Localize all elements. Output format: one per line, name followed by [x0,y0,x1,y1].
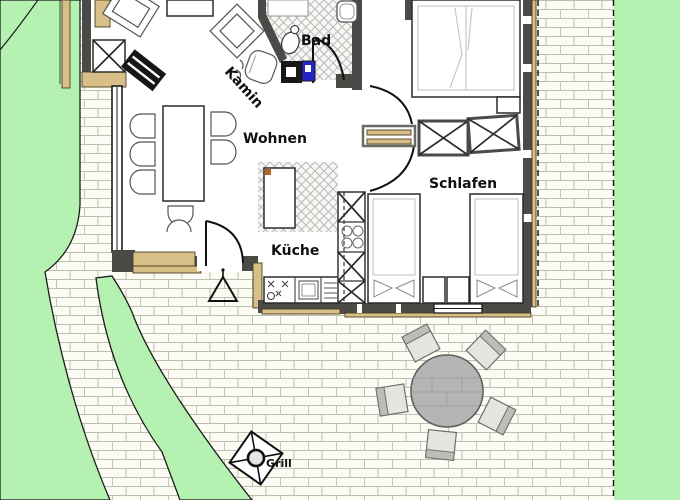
double-bed [412,0,520,113]
single-bed-1 [368,194,420,303]
dining-table [163,106,204,201]
wardrobe-2 [468,115,519,152]
terrace-window [133,252,195,266]
fence-strip [62,0,70,88]
nightstand [447,277,469,303]
bathroom-label: Bad [301,33,331,49]
kitchen-label: Küche [271,243,319,259]
terrace-door-opening [197,255,242,271]
corner-lintel [82,72,126,87]
patio-chair [426,430,457,461]
bedroom-label: Schlafen [429,176,497,192]
kitchen-island [264,168,295,228]
patio-table [411,355,483,427]
living-room-label: Wohnen [243,131,307,147]
wall-edging [532,0,536,307]
terrace-sill [133,266,201,273]
shower-tray [268,0,308,16]
grill-label: Grill [266,457,292,470]
sofa-table [167,0,213,16]
patio-chair [376,384,408,416]
floor-plan-canvas: Bad [0,0,680,500]
fireplace-unit [281,61,315,83]
nightstand [497,97,520,113]
closet-column [338,192,365,303]
lawn-right-strip [614,0,680,500]
single-bed-2 [470,194,523,303]
bathtub [337,1,357,22]
floor-plan: Bad [0,0,680,500]
island-marker [265,169,271,175]
nightstand [423,277,445,303]
